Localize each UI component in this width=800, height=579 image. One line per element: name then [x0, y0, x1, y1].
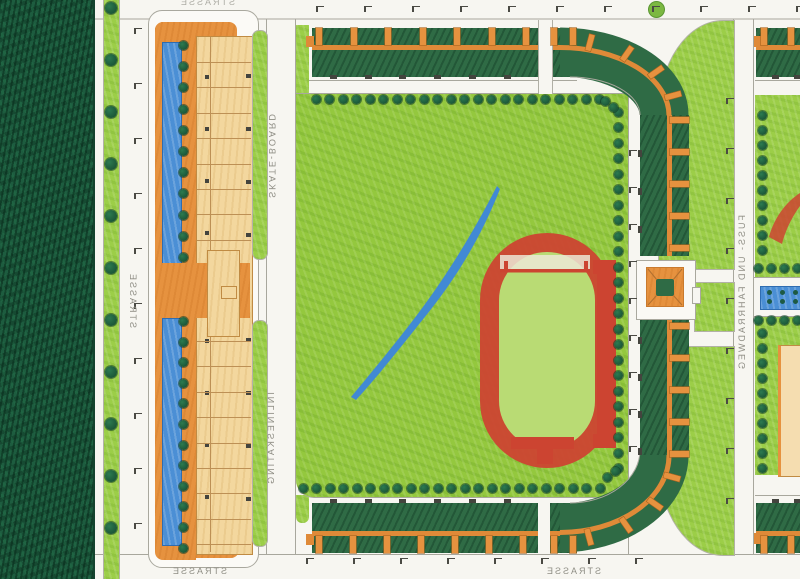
tree-icon — [105, 2, 117, 14]
tree-icon — [614, 232, 623, 241]
tree-icon — [611, 467, 620, 476]
pond-dot-icon — [793, 290, 798, 295]
street-lamp-icon — [726, 448, 734, 454]
tree-icon — [179, 168, 188, 177]
room-divider-line — [197, 341, 251, 342]
street-lamp-icon — [652, 6, 660, 12]
tree-icon — [542, 484, 551, 493]
tree-icon — [582, 95, 591, 104]
tree-icon — [501, 95, 510, 104]
tree-icon — [614, 340, 623, 349]
street-lamp-icon — [134, 358, 142, 364]
tree-icon — [179, 232, 188, 241]
house-block — [670, 451, 689, 457]
tree-icon — [179, 41, 188, 50]
tree-icon — [758, 359, 767, 368]
tree-icon — [528, 484, 537, 493]
tree-icon — [105, 106, 117, 118]
tree-icon — [179, 420, 188, 429]
tree-icon — [758, 389, 767, 398]
room-divider-line — [197, 544, 251, 545]
tree-icon — [603, 473, 612, 482]
street-lamp-icon — [508, 6, 516, 12]
entrance-mark — [504, 499, 511, 503]
entrance-mark — [205, 443, 209, 447]
house-block — [452, 536, 458, 553]
entrance-mark — [365, 499, 372, 503]
entrance-mark — [205, 75, 209, 79]
tree-icon — [179, 441, 188, 450]
tree-icon — [541, 95, 550, 104]
street-lamp-icon — [447, 558, 455, 564]
tree-icon — [105, 54, 117, 66]
entrance-mark — [246, 497, 251, 501]
tree-icon — [614, 325, 623, 334]
tree-icon — [339, 484, 348, 493]
street-lamp-icon — [726, 498, 734, 504]
house-block — [761, 536, 767, 553]
tree-icon — [312, 484, 321, 493]
street-lamp-icon — [629, 409, 637, 415]
house-block — [551, 536, 557, 553]
house-block — [670, 117, 689, 123]
tree-icon — [614, 418, 623, 427]
pond-dot-icon — [780, 299, 785, 304]
tree-icon — [758, 156, 767, 165]
street-lamp-icon — [629, 372, 637, 378]
room-divider-line — [197, 138, 251, 139]
room-divider-line — [197, 62, 251, 63]
house-block — [316, 536, 322, 553]
entrance-mark — [246, 444, 251, 448]
tree-icon — [407, 484, 416, 493]
pond-dot-icon — [767, 299, 772, 304]
tree-icon — [179, 317, 188, 326]
tree-icon — [179, 147, 188, 156]
tree-icon — [614, 201, 623, 210]
tree-icon — [179, 523, 188, 532]
entrance-mark — [246, 233, 251, 237]
tree-icon — [767, 264, 776, 273]
site-plan-canvas: STRASSE STRASSE SKATE-BOARD INLINESKATIN… — [0, 0, 800, 579]
street-lamp-icon — [629, 298, 637, 304]
tree-icon — [393, 95, 402, 104]
tree-icon — [393, 484, 402, 493]
street-lamp-icon — [134, 248, 142, 254]
street-lamp-icon — [726, 348, 734, 354]
tree-icon — [614, 309, 623, 318]
entrance-mark — [638, 150, 642, 157]
street-lamp-icon — [604, 6, 612, 12]
street-lamp-icon — [726, 398, 734, 404]
tree-icon — [758, 449, 767, 458]
street-lamp-icon — [460, 6, 468, 12]
tree-icon — [758, 329, 767, 338]
street-lamp-icon — [629, 446, 637, 452]
tree-icon — [325, 95, 334, 104]
entrance-mark — [246, 180, 251, 184]
tree-icon — [609, 103, 618, 112]
pond-dot-icon — [767, 290, 772, 295]
tree-icon — [793, 316, 800, 325]
street-lamp-icon — [629, 150, 637, 156]
house-block — [788, 536, 794, 553]
tree-icon — [758, 111, 767, 120]
entrance-mark — [638, 226, 642, 233]
room-divider-line — [197, 493, 251, 494]
street-lamp-icon — [134, 28, 142, 34]
street-lamp-icon — [726, 248, 734, 254]
room-divider-line — [197, 443, 251, 444]
entrance-mark — [794, 75, 800, 79]
room-divider-line — [197, 164, 251, 165]
tree-icon — [758, 231, 767, 240]
street-lamp-icon — [134, 523, 142, 529]
tree-icon — [312, 95, 321, 104]
tree-icon — [614, 356, 623, 365]
street-lamp-icon — [726, 298, 734, 304]
house-block — [385, 28, 391, 45]
house-block — [384, 536, 390, 553]
tree-icon — [179, 379, 188, 388]
tree-icon — [179, 83, 188, 92]
room-divider-line — [197, 417, 251, 418]
street-lamp-icon — [412, 6, 420, 12]
street-lamp-icon — [353, 558, 361, 564]
street-lamp-icon — [134, 138, 142, 144]
room-divider-line — [197, 519, 251, 520]
pond-dot-icon — [780, 290, 785, 295]
tree-icon — [614, 154, 623, 163]
tree-icon — [754, 316, 763, 325]
tree-icon — [754, 264, 763, 273]
tree-icon — [614, 433, 623, 442]
tree-icon — [179, 189, 188, 198]
entrance-mark — [246, 74, 251, 78]
tree-icon — [582, 484, 591, 493]
entrance-mark — [434, 499, 441, 503]
tree-icon — [758, 201, 767, 210]
tree-icon — [366, 484, 375, 493]
street-lamp-icon — [556, 6, 564, 12]
tree-icon — [179, 126, 188, 135]
house-block — [551, 28, 557, 45]
tree-icon — [614, 449, 623, 458]
house-block — [454, 28, 460, 45]
tree-icon — [299, 484, 308, 493]
entrance-mark — [794, 499, 800, 503]
tree-icon — [487, 95, 496, 104]
entrance-mark — [638, 374, 642, 381]
tree-icon — [179, 211, 188, 220]
house-block — [570, 536, 576, 553]
tree-icon — [352, 95, 361, 104]
room-divider-line — [197, 113, 251, 114]
entrance-mark — [205, 231, 209, 235]
house-block — [670, 355, 689, 361]
street-lamp-icon — [748, 6, 756, 12]
tree-icon — [758, 126, 767, 135]
room-divider-line — [197, 468, 251, 469]
tree-icon — [780, 264, 789, 273]
entrance-mark — [365, 75, 372, 79]
house-block — [670, 149, 689, 155]
house-block — [670, 245, 689, 251]
tree-icon — [105, 470, 117, 482]
tree-icon — [366, 95, 375, 104]
entrance-mark — [246, 127, 251, 131]
tree-icon — [614, 216, 623, 225]
street-lamp-icon — [726, 198, 734, 204]
tree-icon — [614, 371, 623, 380]
tree-icon — [515, 484, 524, 493]
street-lamp-icon — [134, 83, 142, 89]
tree-icon — [460, 95, 469, 104]
tree-icon — [758, 419, 767, 428]
house-block — [670, 419, 689, 425]
tree-icon — [555, 484, 564, 493]
tree-icon — [474, 484, 483, 493]
tree-icon — [179, 544, 188, 553]
entrance-mark — [434, 75, 441, 79]
street-lamp-icon — [134, 468, 142, 474]
tree-icon — [420, 484, 429, 493]
house-block — [670, 387, 689, 393]
pond-dot-icon — [793, 299, 798, 304]
tree-icon — [568, 95, 577, 104]
house-block — [523, 28, 529, 45]
tree-icon — [447, 484, 456, 493]
street-lamp-icon — [494, 558, 502, 564]
street-lamp-icon — [629, 187, 637, 193]
house-block — [670, 323, 689, 329]
tree-icon — [780, 316, 789, 325]
entrance-mark — [638, 448, 642, 455]
street-lamp-icon — [629, 224, 637, 230]
street-lamp-icon — [541, 558, 549, 564]
tree-icon — [758, 404, 767, 413]
tree-icon — [758, 434, 767, 443]
house-block — [570, 28, 576, 45]
house-block — [420, 28, 426, 45]
tree-icon — [514, 95, 523, 104]
entrance-mark — [469, 499, 476, 503]
tree-icon — [758, 344, 767, 353]
tree-icon — [179, 482, 188, 491]
entrance-mark — [399, 75, 406, 79]
street-lamp-icon — [306, 558, 314, 564]
tree-icon — [758, 171, 767, 180]
tree-icon — [179, 338, 188, 347]
tree-icon — [614, 278, 623, 287]
street-lamp-icon — [400, 558, 408, 564]
entrance-mark — [469, 75, 476, 79]
tree-icon — [420, 95, 429, 104]
tree-icon — [501, 484, 510, 493]
street-lamp-icon — [635, 558, 643, 564]
room-divider-line — [197, 87, 251, 88]
tree-icon — [528, 95, 537, 104]
house-block — [316, 28, 322, 45]
tree-icon — [488, 484, 497, 493]
room-divider-line — [197, 366, 251, 367]
decor-layer — [0, 0, 800, 579]
tree-icon — [614, 263, 623, 272]
tree-icon — [758, 464, 767, 473]
tree-icon — [105, 366, 117, 378]
tree-icon — [614, 123, 623, 132]
house-block — [489, 28, 495, 45]
tree-icon — [434, 484, 443, 493]
tree-icon — [758, 216, 767, 225]
tree-icon — [380, 484, 389, 493]
tree-icon — [339, 95, 348, 104]
entrance-mark — [638, 411, 642, 418]
house-block — [670, 181, 689, 187]
entrance-mark — [772, 499, 779, 503]
street-lamp-icon — [588, 558, 596, 564]
street-lamp-icon — [316, 6, 324, 12]
tree-icon — [179, 105, 188, 114]
street-lamp-icon — [364, 6, 372, 12]
street-lamp-icon — [796, 6, 800, 12]
tree-icon — [379, 95, 388, 104]
tree-icon — [793, 264, 800, 273]
tree-icon — [614, 139, 623, 148]
street-lamp-icon — [629, 335, 637, 341]
room-divider-line — [197, 392, 251, 393]
tree-icon — [105, 522, 117, 534]
tree-icon — [179, 358, 188, 367]
street-lamp-icon — [726, 98, 734, 104]
street-lamp-icon — [134, 193, 142, 199]
street-lamp-icon — [134, 413, 142, 419]
tree-icon — [758, 374, 767, 383]
tree-icon — [555, 95, 564, 104]
tree-icon — [758, 246, 767, 255]
house-block — [670, 213, 689, 219]
entrance-mark — [638, 188, 642, 195]
entrance-mark — [205, 179, 209, 183]
tree-icon — [326, 484, 335, 493]
tree-icon — [105, 262, 117, 274]
house-block — [351, 28, 357, 45]
street-lamp-icon — [629, 261, 637, 267]
tree-icon — [105, 314, 117, 326]
house-block — [788, 28, 794, 45]
tree-icon — [179, 461, 188, 470]
tree-icon — [596, 484, 605, 493]
tree-icon — [614, 402, 623, 411]
tree-icon — [406, 95, 415, 104]
tree-icon — [461, 484, 470, 493]
entrance-mark — [330, 75, 337, 79]
house-block — [761, 28, 767, 45]
tree-icon — [179, 502, 188, 511]
tree-icon — [353, 484, 362, 493]
tree-icon — [447, 95, 456, 104]
entrance-mark — [205, 127, 209, 131]
tree-icon — [614, 294, 623, 303]
tree-icon — [474, 95, 483, 104]
entrance-mark — [399, 499, 406, 503]
entrance-mark — [638, 337, 642, 344]
tree-icon — [179, 253, 188, 262]
entrance-mark — [330, 499, 337, 503]
tree-icon — [758, 186, 767, 195]
house-block — [486, 536, 492, 553]
tree-icon — [758, 141, 767, 150]
tree-icon — [767, 316, 776, 325]
tree-icon — [569, 484, 578, 493]
tree-icon — [105, 418, 117, 430]
tree-icon — [179, 62, 188, 71]
entrance-mark — [772, 75, 779, 79]
house-block — [418, 536, 424, 553]
tree-icon — [105, 210, 117, 222]
tree-icon — [179, 399, 188, 408]
house-block — [350, 536, 356, 553]
tree-icon — [614, 185, 623, 194]
room-divider-line — [197, 214, 251, 215]
tree-icon — [614, 387, 623, 396]
tree-icon — [614, 170, 623, 179]
tree-icon — [105, 158, 117, 170]
house-block — [520, 536, 526, 553]
entrance-mark — [504, 75, 511, 79]
room-divider-line — [197, 189, 251, 190]
street-lamp-icon — [726, 148, 734, 154]
entrance-mark — [205, 495, 209, 499]
tree-icon — [614, 247, 623, 256]
tree-icon — [433, 95, 442, 104]
street-lamp-icon — [700, 6, 708, 12]
room-divider-line — [197, 240, 251, 241]
